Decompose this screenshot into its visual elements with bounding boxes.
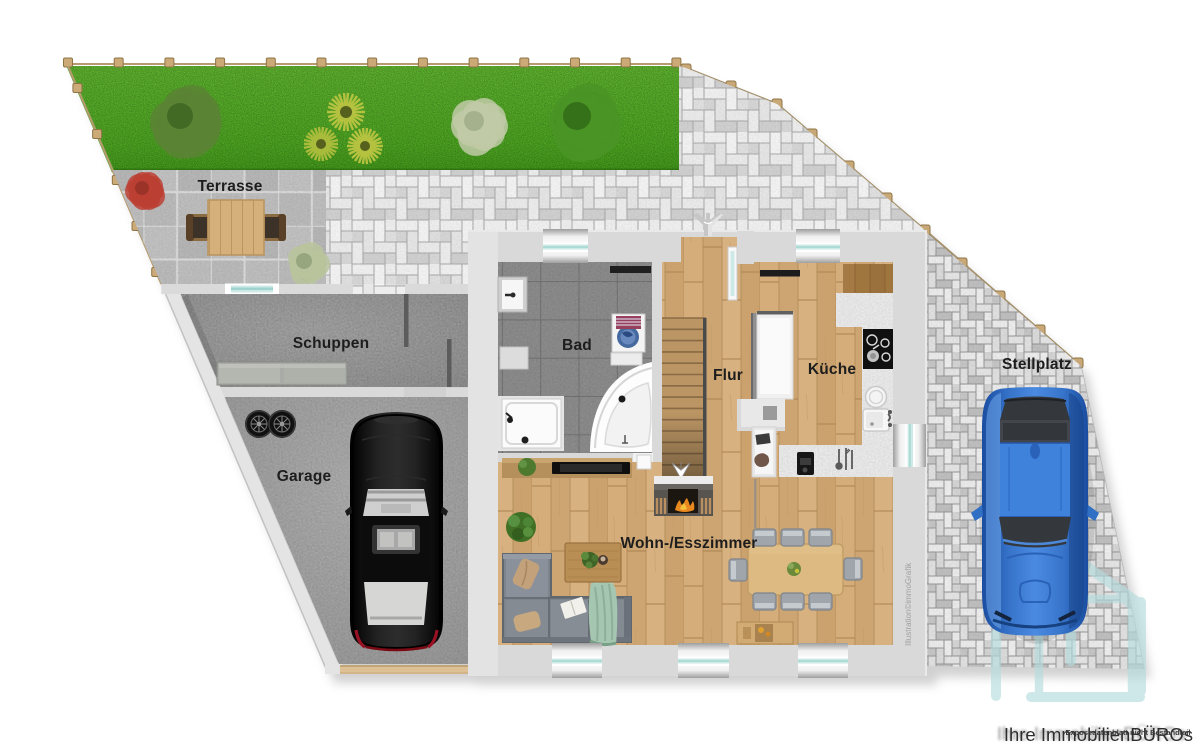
svg-text:Stellplatz: Stellplatz [1002, 356, 1072, 373]
svg-text:Wohn-/Esszimmer: Wohn-/Esszimmer [620, 535, 757, 552]
svg-text:Schuppen: Schuppen [293, 335, 370, 352]
svg-text:Terrasse: Terrasse [197, 178, 262, 195]
svg-text:Bad: Bad [562, 337, 592, 354]
svg-text:Exposedatenblatt nicht Bestand: Exposedatenblatt nicht Bestandteil [1065, 728, 1190, 737]
svg-text:Flur: Flur [713, 367, 743, 384]
svg-text:Illustration©immoGrafik: Illustration©immoGrafik [904, 562, 913, 646]
svg-text:Garage: Garage [277, 468, 332, 485]
svg-text:Küche: Küche [808, 361, 857, 378]
